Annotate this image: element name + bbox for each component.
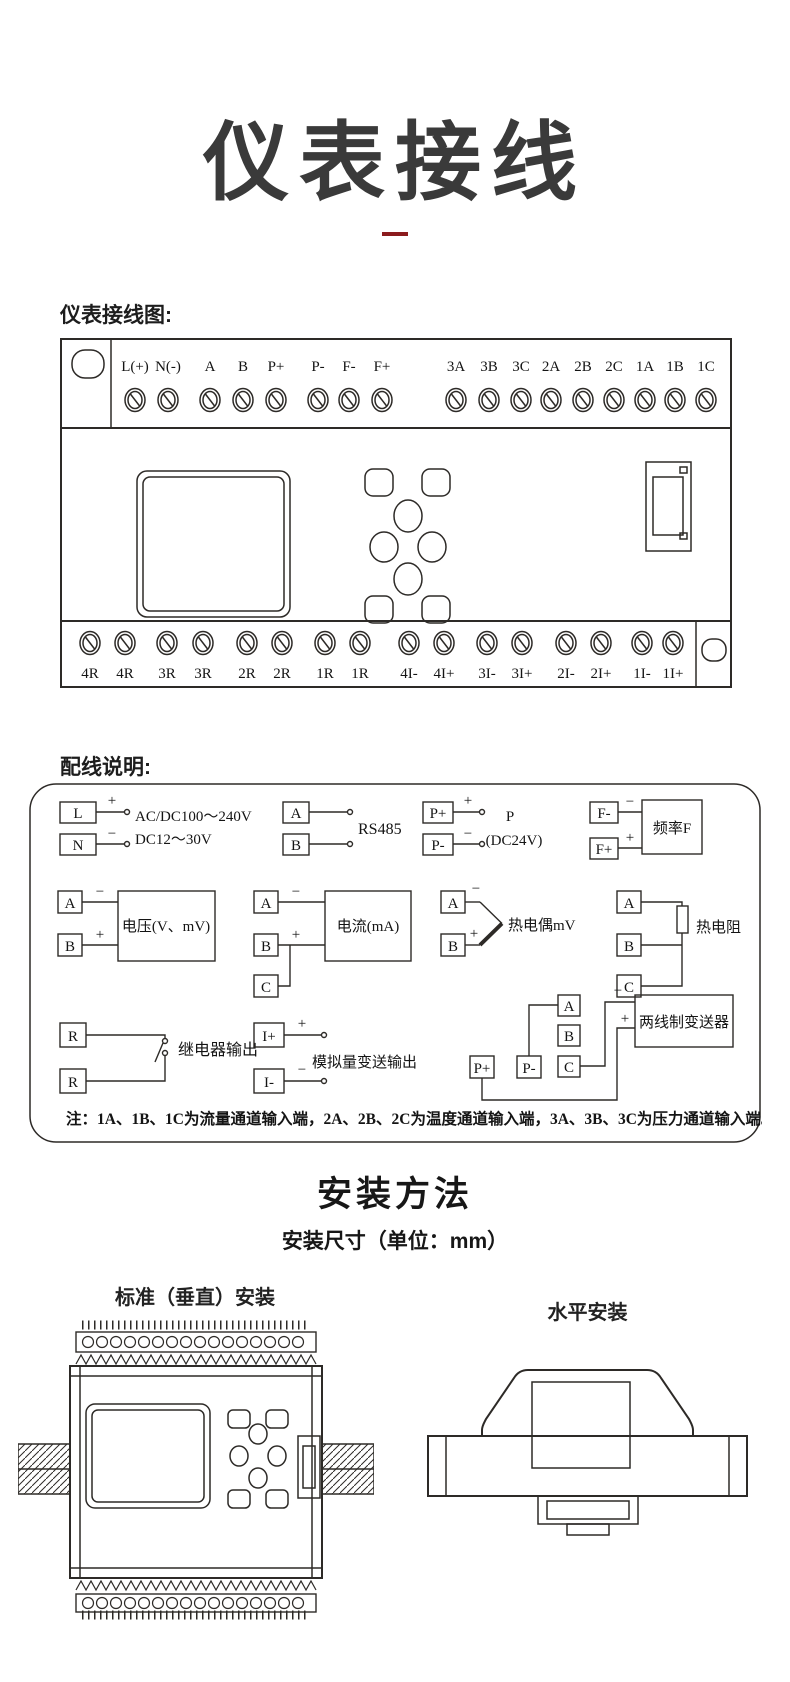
polarity-plus: + xyxy=(108,793,116,809)
terminal-label: 4I- xyxy=(400,666,418,682)
voltage-device-label: 电压(V、mV) xyxy=(122,918,210,935)
terminal-box-label: R xyxy=(68,1075,78,1091)
polarity-minus: − xyxy=(614,983,622,999)
terminal-box-label: N xyxy=(73,838,84,854)
terminal-label: 1A xyxy=(636,359,655,375)
terminal-box-label: B xyxy=(448,939,458,955)
terminal-label: 2R xyxy=(238,666,256,682)
device-body xyxy=(70,1366,322,1578)
device-profile xyxy=(482,1370,693,1436)
terminal-label: P- xyxy=(311,359,324,375)
terminal-box-label: P+ xyxy=(430,806,447,822)
terminal-box-label: L xyxy=(73,806,82,822)
terminal-box-label: B xyxy=(291,838,301,854)
terminal-label: 4I+ xyxy=(434,666,455,682)
polarity-minus: − xyxy=(472,881,480,897)
terminal-box-label: P- xyxy=(431,838,444,854)
key-right xyxy=(418,532,446,562)
terminal-label: L(+) xyxy=(121,359,149,375)
power-range-2: DC12～30V xyxy=(135,832,212,848)
terminal-label: 4R xyxy=(81,666,99,682)
terminal-label: 1C xyxy=(697,359,715,375)
base-band xyxy=(428,1436,747,1496)
polarity-minus: − xyxy=(464,826,472,842)
polarity-minus: − xyxy=(108,826,116,842)
polarity-plus: + xyxy=(298,1016,306,1032)
sensor-power-voltage: (DC24V) xyxy=(486,833,543,849)
terminal-label: 1I- xyxy=(633,666,651,682)
terminal-label: 3A xyxy=(447,359,466,375)
keypad-small xyxy=(228,1410,288,1508)
terminal-label: F- xyxy=(342,359,355,375)
terminal-screws-top xyxy=(83,1337,304,1348)
terminal-label: 2R xyxy=(273,666,291,682)
terminal-box-label: C xyxy=(261,980,271,996)
thermocouple-junction xyxy=(480,902,502,924)
polarity-plus: + xyxy=(464,793,472,809)
terminal-box-label: A xyxy=(624,896,635,912)
terminal-box-label: I+ xyxy=(262,1029,275,1045)
terminal-label: 1B xyxy=(666,359,684,375)
analog-output-cell: I+ + I- − 模拟量变送输出 xyxy=(254,1016,417,1093)
terminal-screws-bottom xyxy=(83,1598,304,1609)
terminal-label: 1I+ xyxy=(663,666,684,682)
terminal-box-label: A xyxy=(448,896,459,912)
keypad xyxy=(365,469,450,623)
frequency-cell: F- − F+ + 频率F xyxy=(590,794,702,859)
rtd-cell: A B C 热电阻 xyxy=(617,891,741,997)
terminal-box-label: B xyxy=(624,939,634,955)
relay-switch-contact xyxy=(155,1043,163,1062)
terminal-label: 1R xyxy=(316,666,334,682)
rs485-cell: A B RS485 xyxy=(283,802,402,855)
terminal-box-label: P- xyxy=(522,1061,535,1077)
current-device-label: 电流(mA) xyxy=(337,918,400,935)
terminal-label: 3I- xyxy=(478,666,496,682)
bottom-terminal-labels: 4R 4R 3R 3R 2R 2R 1R 1R 4I- 4I+ 3I- 3I+ … xyxy=(81,666,683,682)
terminal-panel-diagram: L(+) N(-) A B P+ P- F- F+ 3A 3B 3C 2A 2B… xyxy=(60,338,732,690)
key-down xyxy=(394,563,422,595)
terminal-label: A xyxy=(205,359,216,375)
key-up xyxy=(394,500,422,532)
vent-zigzag-bottom xyxy=(76,1581,316,1590)
terminal-label: 3I+ xyxy=(512,666,533,682)
terminal-box-label: C xyxy=(564,1060,574,1076)
analog-output-label: 模拟量变送输出 xyxy=(312,1054,417,1071)
side-connector xyxy=(646,462,691,551)
terminal-box-label: B xyxy=(261,939,271,955)
terminal-box-label: R xyxy=(68,1029,78,1045)
install-size-subtitle: 安装尺寸（单位：mm） xyxy=(0,1225,790,1255)
install-method-title: 安装方法 xyxy=(0,1166,790,1217)
din-rail-left xyxy=(18,1444,70,1494)
product-wiring-page: 仪表接线 仪表接线图: L(+) N(-) A B P+ P- F- F+ xyxy=(0,0,790,1682)
lcd-display-small xyxy=(86,1404,210,1508)
terminal-label: 3C xyxy=(512,359,530,375)
sensor-power-name: P xyxy=(506,809,514,825)
front-face xyxy=(532,1382,630,1468)
terminal-label: 2C xyxy=(605,359,623,375)
polarity-minus: − xyxy=(96,884,104,900)
terminal-label: 1R xyxy=(351,666,369,682)
bottom-terminal-screws xyxy=(80,632,683,655)
terminal-label: 2I+ xyxy=(591,666,612,682)
wiring-instructions-label: 配线说明: xyxy=(60,751,151,781)
polarity-minus: − xyxy=(298,1062,306,1078)
current-input-cell: A − B + C 电流(mA) xyxy=(254,884,411,997)
polarity-minus: − xyxy=(292,884,300,900)
polarity-plus: + xyxy=(470,926,478,942)
key-left xyxy=(370,532,398,562)
key-top-right xyxy=(422,469,450,496)
terminal-label: 3R xyxy=(158,666,176,682)
terminal-label: N(-) xyxy=(155,359,181,375)
vent-zigzag-top xyxy=(76,1355,316,1364)
terminal-box-label: F+ xyxy=(596,842,613,858)
top-terminal-labels: L(+) N(-) A B P+ P- F- F+ 3A 3B 3C 2A 2B… xyxy=(121,359,715,375)
terminal-box-label: I- xyxy=(264,1075,274,1091)
mount-hole-top-left xyxy=(72,350,104,378)
terminal-label: 2A xyxy=(542,359,561,375)
horizontal-install-label: 水平安装 xyxy=(420,1296,755,1325)
top-terminal-screws xyxy=(125,389,716,412)
channel-note: 注：1A、1B、1C为流量通道输入端，2A、2B、2C为温度通道输入端，3A、3… xyxy=(66,1109,762,1128)
terminal-label: P+ xyxy=(268,359,285,375)
relay-label: 继电器输出 xyxy=(178,1041,258,1059)
sensor-power-cell: P+ + P- − P (DC24V) xyxy=(423,793,542,855)
key-top-left xyxy=(365,469,393,496)
polarity-plus: + xyxy=(626,830,634,846)
relay-output-cell: R R 继电器输出 xyxy=(60,1023,258,1093)
rtd-resistor xyxy=(677,906,688,933)
page-title: 仪表接线 xyxy=(0,92,790,217)
terminal-box-label: P+ xyxy=(474,1061,491,1077)
side-connector-small xyxy=(298,1436,320,1498)
terminal-label: 2B xyxy=(574,359,592,375)
terminal-box-label: A xyxy=(291,806,302,822)
wiring-instructions-diagram: L + N − AC/DC100～240V DC12～30V A B RS485… xyxy=(28,782,762,1144)
din-clip xyxy=(538,1496,638,1535)
voltage-input-cell: A − B + 电压(V、mV) xyxy=(58,884,215,961)
terminal-box-label: F- xyxy=(597,806,610,822)
terminal-box-label: A xyxy=(564,999,575,1015)
thermocouple-label: 热电偶mV xyxy=(508,917,576,934)
terminal-label: 4R xyxy=(116,666,134,682)
terminal-strip-top xyxy=(76,1332,316,1352)
terminal-box-label: C xyxy=(624,980,634,996)
terminal-box-label: A xyxy=(261,896,272,912)
vertical-install-drawing xyxy=(18,1318,374,1620)
terminal-label: F+ xyxy=(374,359,391,375)
power-range-1: AC/DC100～240V xyxy=(135,809,252,825)
power-supply-cell: L + N − AC/DC100～240V DC12～30V xyxy=(60,793,252,855)
rtd-label: 热电阻 xyxy=(696,919,741,936)
transmitter-cell: P+ P- A B C 两线制变送器 − + xyxy=(470,983,733,1100)
thermocouple-cell: A − B + 热电偶mV xyxy=(441,881,576,956)
terminal-label: 3R xyxy=(194,666,212,682)
rs485-label: RS485 xyxy=(358,821,402,838)
vertical-install-label: 标准（垂直）安装 xyxy=(0,1281,390,1310)
mount-hole-bottom-right xyxy=(702,639,726,661)
polarity-plus: + xyxy=(292,927,300,943)
title-underline xyxy=(382,232,408,236)
polarity-plus: + xyxy=(96,927,104,943)
frequency-device-label: 频率F xyxy=(653,820,691,837)
horizontal-install-drawing xyxy=(420,1350,755,1560)
terminal-label: 3B xyxy=(480,359,498,375)
terminal-box-label: B xyxy=(564,1029,574,1045)
wiring-diagram-label: 仪表接线图: xyxy=(60,299,172,329)
transmitter-device-label: 两线制变送器 xyxy=(639,1014,729,1031)
terminal-label: 2I- xyxy=(557,666,575,682)
terminal-strip-bottom xyxy=(76,1594,316,1612)
key-bottom-left xyxy=(365,596,393,623)
terminal-label: B xyxy=(238,359,248,375)
polarity-plus: + xyxy=(621,1011,629,1027)
terminal-box-label: B xyxy=(65,939,75,955)
lcd-display xyxy=(137,471,290,617)
din-rail-right xyxy=(322,1444,374,1494)
terminal-box-label: A xyxy=(65,896,76,912)
polarity-minus: − xyxy=(626,794,634,810)
key-bottom-right xyxy=(422,596,450,623)
